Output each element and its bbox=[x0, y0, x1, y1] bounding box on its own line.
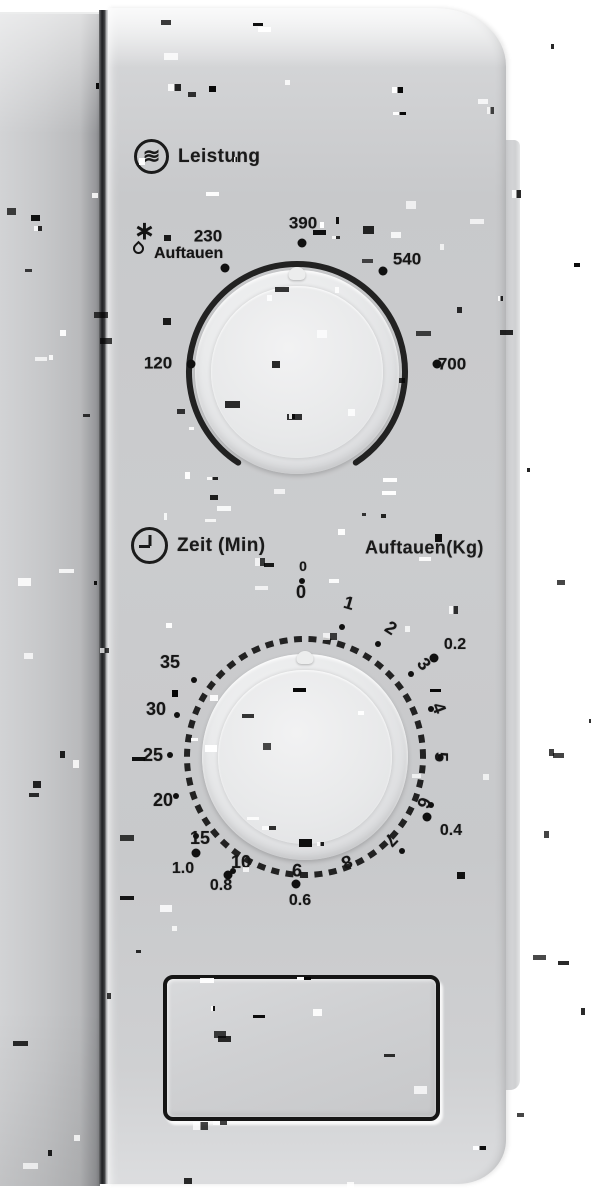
timer-knob[interactable] bbox=[202, 654, 408, 860]
jpeg-artifact-dash bbox=[549, 749, 554, 756]
jpeg-artifact-dash bbox=[557, 580, 565, 585]
jpeg-artifact-dash bbox=[533, 955, 546, 960]
timer-knob-pointer bbox=[297, 651, 314, 664]
jpeg-artifact-dash bbox=[568, 263, 580, 267]
jpeg-artifact-dash bbox=[526, 825, 536, 832]
jpeg-artifact-dash bbox=[551, 44, 554, 49]
power-knob-pointer bbox=[289, 267, 306, 280]
jpeg-artifact-dash bbox=[553, 753, 564, 758]
clock-icon bbox=[131, 527, 168, 564]
jpeg-artifact-dash bbox=[587, 719, 591, 723]
cabinet-side-strip bbox=[505, 140, 520, 1090]
jpeg-artifact-dash bbox=[575, 419, 581, 426]
clock-hour-hand bbox=[139, 545, 150, 548]
jpeg-artifact-dash bbox=[549, 101, 558, 108]
power-section-heading: Leistung bbox=[178, 146, 260, 168]
jpeg-artifact-dash bbox=[585, 482, 588, 485]
jpeg-artifact-dash bbox=[517, 1113, 524, 1117]
jpeg-artifact-dash bbox=[579, 774, 586, 779]
defrost-weight-heading: Auftauen(Kg) bbox=[365, 538, 484, 559]
jpeg-artifact-dash bbox=[544, 831, 549, 838]
jpeg-artifact-dash bbox=[558, 961, 569, 965]
jpeg-artifact-dash bbox=[549, 431, 554, 436]
jpeg-artifact-dash bbox=[550, 112, 556, 116]
power-knob-cap bbox=[211, 286, 382, 457]
microwave-waves-icon: ≋ bbox=[134, 139, 169, 174]
microwave-waves-glyph: ≋ bbox=[143, 146, 161, 167]
defrost-position-group: ∗ Auftauen bbox=[130, 224, 240, 264]
microwave-door-edge bbox=[0, 12, 100, 1186]
timer-section-heading: Zeit (Min) bbox=[177, 535, 265, 557]
jpeg-artifact-dash bbox=[546, 982, 554, 990]
jpeg-artifact-dash bbox=[566, 104, 579, 108]
power-knob[interactable] bbox=[195, 270, 399, 474]
jpeg-artifact-dash bbox=[527, 468, 530, 472]
defrost-label: Auftauen bbox=[154, 245, 223, 263]
jpeg-artifact-dash bbox=[581, 1008, 585, 1015]
door-open-button[interactable] bbox=[163, 975, 440, 1121]
timer-knob-cap bbox=[218, 670, 391, 843]
